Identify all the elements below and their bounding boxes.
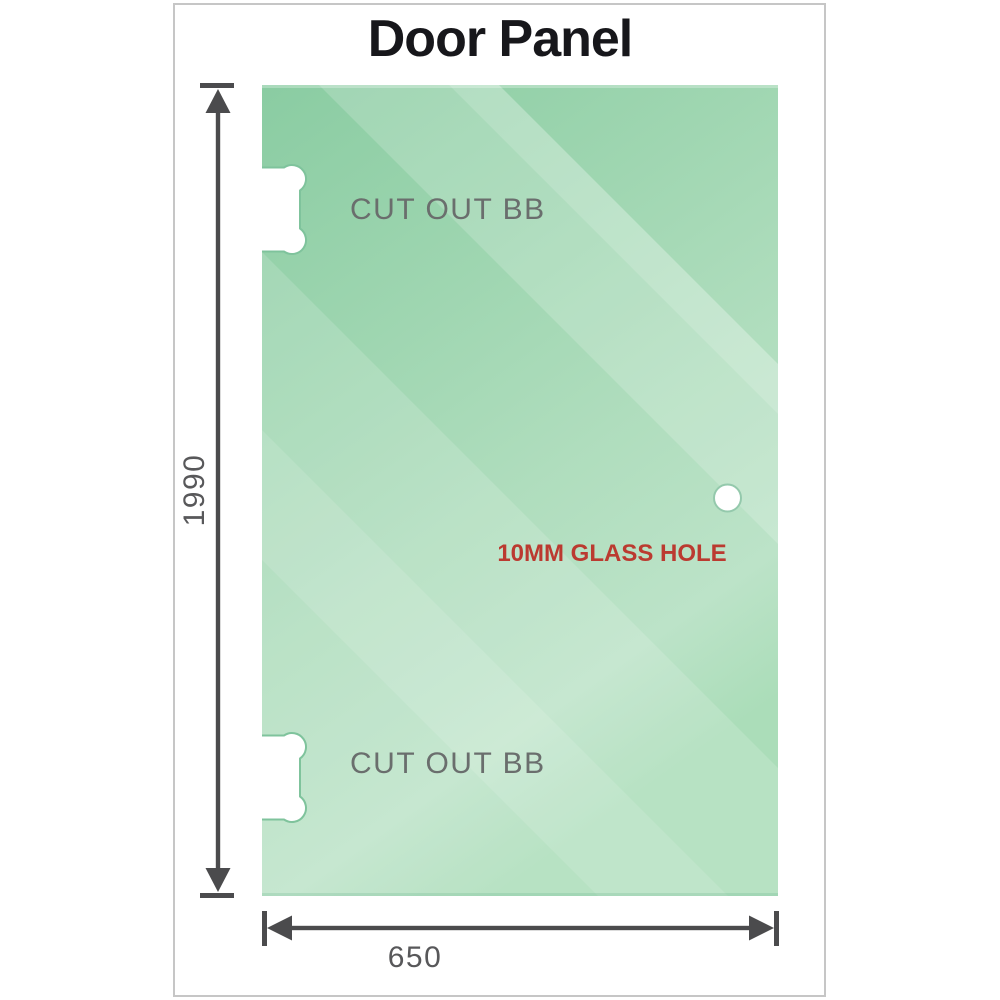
- height-dimension: 1990: [178, 83, 234, 898]
- width-dimension-label: 650: [388, 941, 443, 974]
- arrow-up-icon: [206, 89, 231, 113]
- door-panel-diagram: 1990 650 CUT OUT BB CUT OUT BB 10MM GLAS…: [0, 0, 1000, 1000]
- cutout-bottom-shape: [256, 733, 306, 822]
- arrow-right-icon: [749, 916, 774, 941]
- height-dimension-tick-top: [200, 83, 234, 88]
- glass-hole-label: 10MM GLASS HOLE: [497, 540, 726, 567]
- arrow-down-icon: [206, 868, 231, 892]
- panel-top-highlight: [262, 85, 778, 88]
- width-dimension-tick-left: [262, 911, 267, 946]
- height-dimension-line: [216, 96, 220, 885]
- cutout-top-shape: [256, 165, 306, 254]
- width-dimension: 650: [262, 911, 779, 974]
- width-dimension-line: [276, 926, 766, 930]
- page: Door Panel: [0, 0, 1000, 1000]
- width-dimension-tick-right: [774, 911, 779, 946]
- glass-hole: [714, 485, 741, 512]
- arrow-left-icon: [267, 916, 292, 941]
- panel-bottom-shade: [262, 893, 778, 896]
- cutout-bottom-label: CUT OUT BB: [350, 747, 546, 780]
- cutout-top-label: CUT OUT BB: [350, 193, 546, 226]
- height-dimension-label: 1990: [178, 454, 211, 527]
- height-dimension-tick-bottom: [200, 893, 234, 898]
